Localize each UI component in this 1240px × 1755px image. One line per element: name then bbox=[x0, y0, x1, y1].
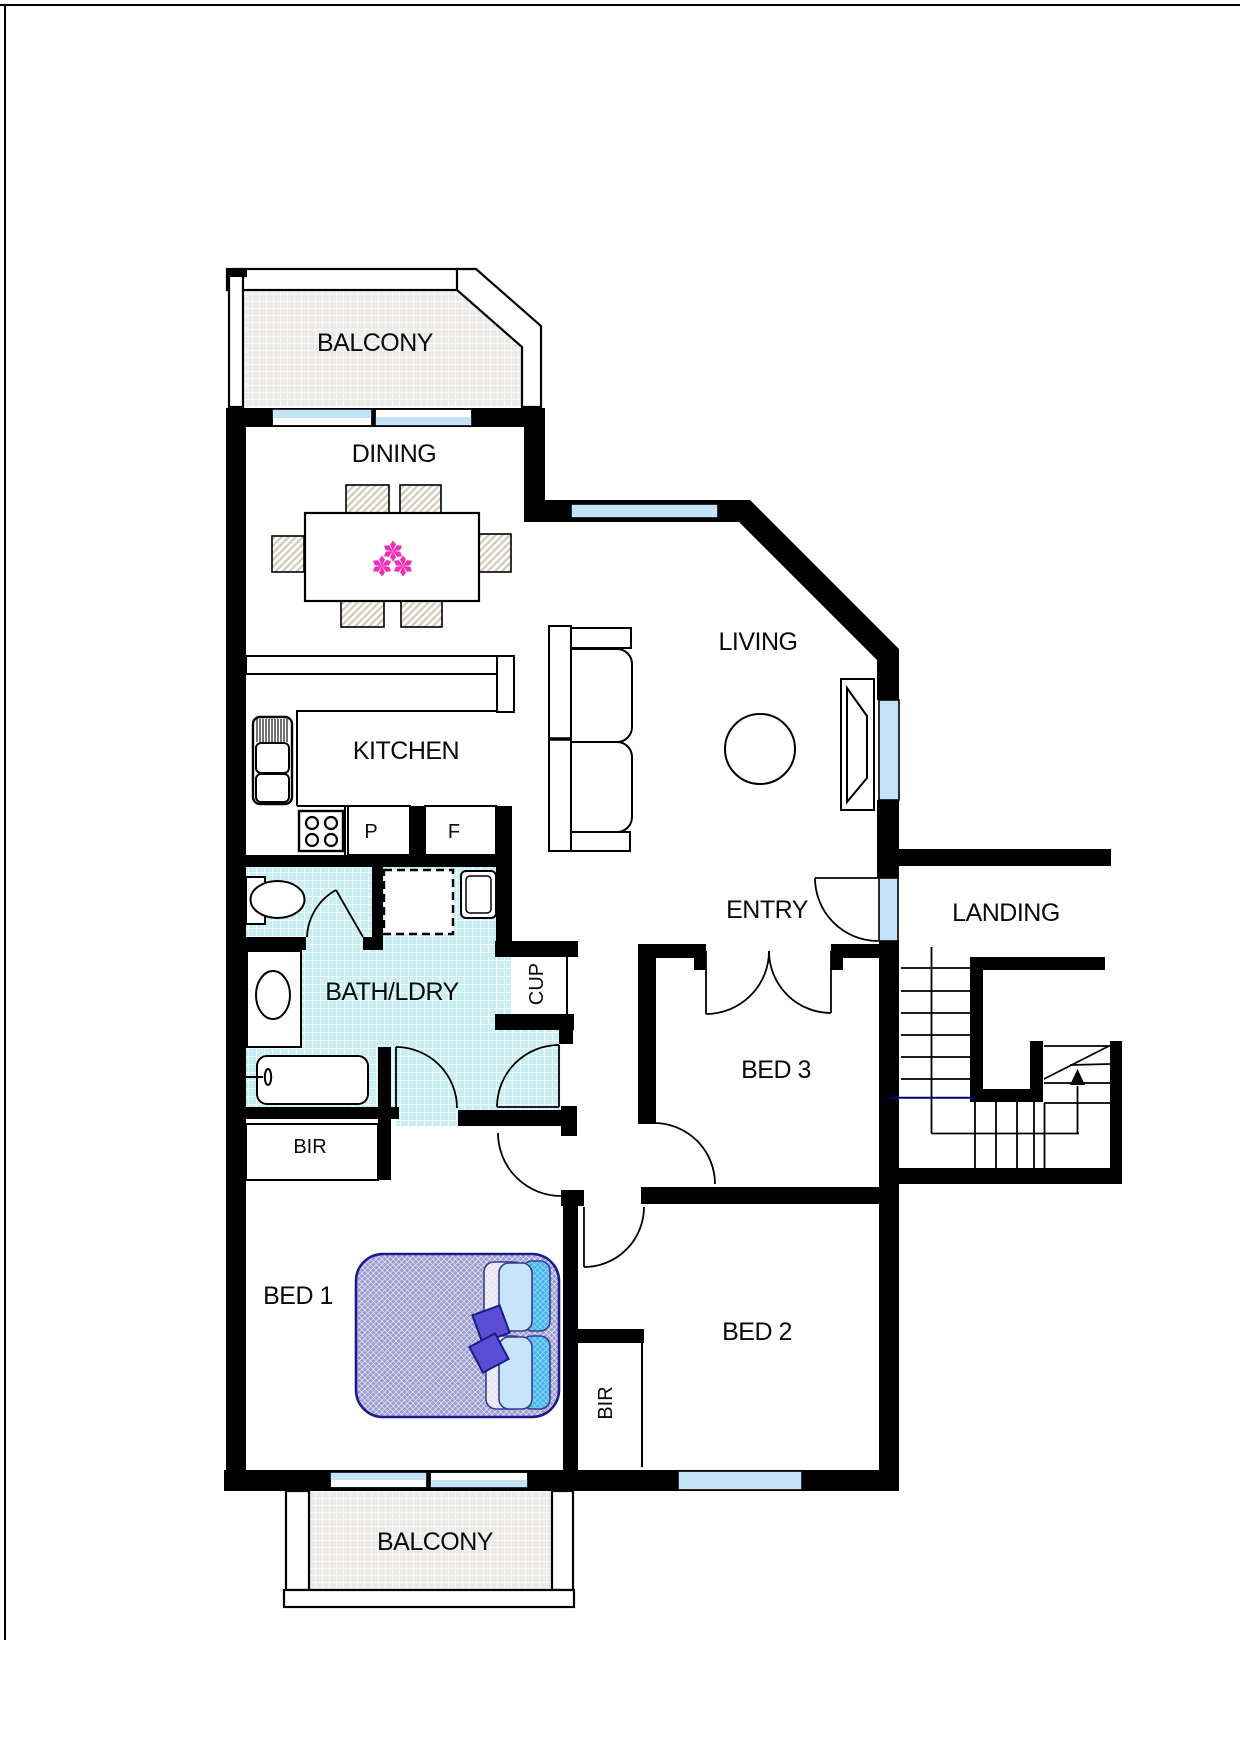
svg-text:BED 1: BED 1 bbox=[263, 1282, 333, 1310]
svg-text:BIR: BIR bbox=[595, 1386, 617, 1419]
svg-text:BATH/LDRY: BATH/LDRY bbox=[325, 978, 459, 1006]
svg-text:P: P bbox=[364, 821, 377, 843]
svg-text:LANDING: LANDING bbox=[952, 899, 1060, 927]
svg-text:BED 3: BED 3 bbox=[741, 1056, 811, 1084]
svg-text:CUP: CUP bbox=[526, 963, 548, 1005]
svg-text:BALCONY: BALCONY bbox=[377, 1528, 494, 1556]
svg-text:LIVING: LIVING bbox=[719, 628, 798, 656]
svg-text:KITCHEN: KITCHEN bbox=[353, 737, 459, 765]
svg-text:DINING: DINING bbox=[352, 440, 437, 468]
svg-text:F: F bbox=[448, 821, 460, 843]
svg-text:ENTRY: ENTRY bbox=[726, 896, 809, 924]
svg-text:BIR: BIR bbox=[293, 1136, 326, 1158]
svg-text:BALCONY: BALCONY bbox=[317, 329, 434, 357]
svg-text:BED 2: BED 2 bbox=[722, 1318, 792, 1346]
